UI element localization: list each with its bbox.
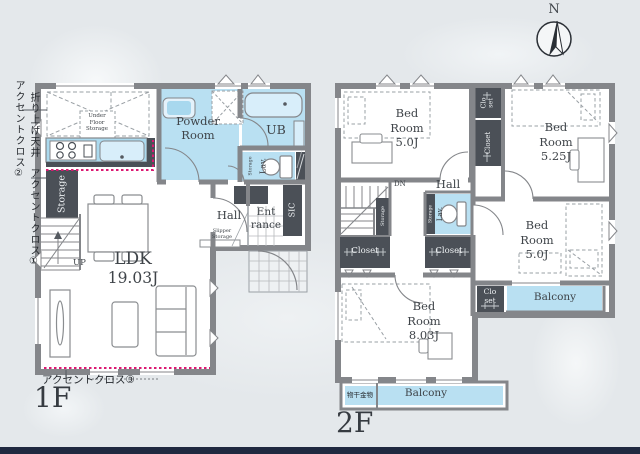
floor1-title: 1F xyxy=(34,381,71,414)
footer-bar xyxy=(0,447,640,454)
laundry-hardware-label: 物干金物 xyxy=(347,389,373,399)
bathtub xyxy=(245,93,302,117)
closet-south-label: Clo set xyxy=(484,288,497,305)
up-label: UP xyxy=(73,258,86,268)
sic-label: SIC xyxy=(288,203,297,218)
bedroom-e-label: Bed Room 5.0J xyxy=(520,218,553,262)
powder-room-label: Powder Room xyxy=(176,115,220,143)
under-floor-storage-label: Under Floor Storage xyxy=(86,113,108,133)
floor2-plan xyxy=(335,75,617,409)
balcony-east-label: Balcony xyxy=(534,291,576,303)
lav-storage-1f-label: Storage xyxy=(249,156,254,175)
compass-north-label: N xyxy=(548,2,559,17)
slipper-storage-label: Slipper Storage xyxy=(212,228,232,240)
storage-1f-label: Storage xyxy=(57,175,68,213)
dining-table xyxy=(88,204,148,252)
porch xyxy=(249,251,307,292)
accent-cross-1-note: アクセントクロス① xyxy=(26,168,41,268)
hall-storage-box xyxy=(234,186,268,204)
dn-label: DN xyxy=(394,180,406,188)
lav-storage-2f-label: Storage xyxy=(429,205,434,223)
floorplan-page: N Under Floor Storage Powder Room UB Lav… xyxy=(0,0,640,454)
lav-2f-label: Lav. xyxy=(436,207,444,221)
closet-west-label: Closet xyxy=(351,246,378,256)
tv xyxy=(57,301,64,345)
accent-cross-2-note: アクセントクロス② xyxy=(11,80,26,180)
closet-center-label: Closet xyxy=(435,246,462,256)
sofa xyxy=(156,286,196,356)
floor2-title: 2F xyxy=(336,406,373,439)
closet-nw-lower-label: Closet xyxy=(484,132,492,154)
entrance-label: Ent rance xyxy=(251,206,281,231)
bedroom-s-label: Bed Room 8.03J xyxy=(407,299,440,343)
closet-nw-upper-label: Clo set xyxy=(481,98,496,109)
balcony-south-label: Balcony xyxy=(405,387,447,399)
stair-storage-label: Storage xyxy=(380,206,386,226)
coffee-table xyxy=(112,302,138,347)
ldk-label: LDK 19.03J xyxy=(108,250,159,287)
kitchen-counter xyxy=(46,138,155,167)
ub-label: UB xyxy=(266,122,286,137)
compass xyxy=(537,21,571,56)
hall-1f-label: Hall xyxy=(217,208,241,222)
bedroom-ne-label: Bed Room 5.25J xyxy=(539,120,572,164)
lav-1f-label: Lav. xyxy=(259,158,268,174)
raised-ceiling-note: 折り上げ天井 xyxy=(26,92,41,158)
hall-2f-label: Hall xyxy=(436,177,460,191)
bedroom-nw-label: Bed Room 5.0J xyxy=(390,106,423,150)
